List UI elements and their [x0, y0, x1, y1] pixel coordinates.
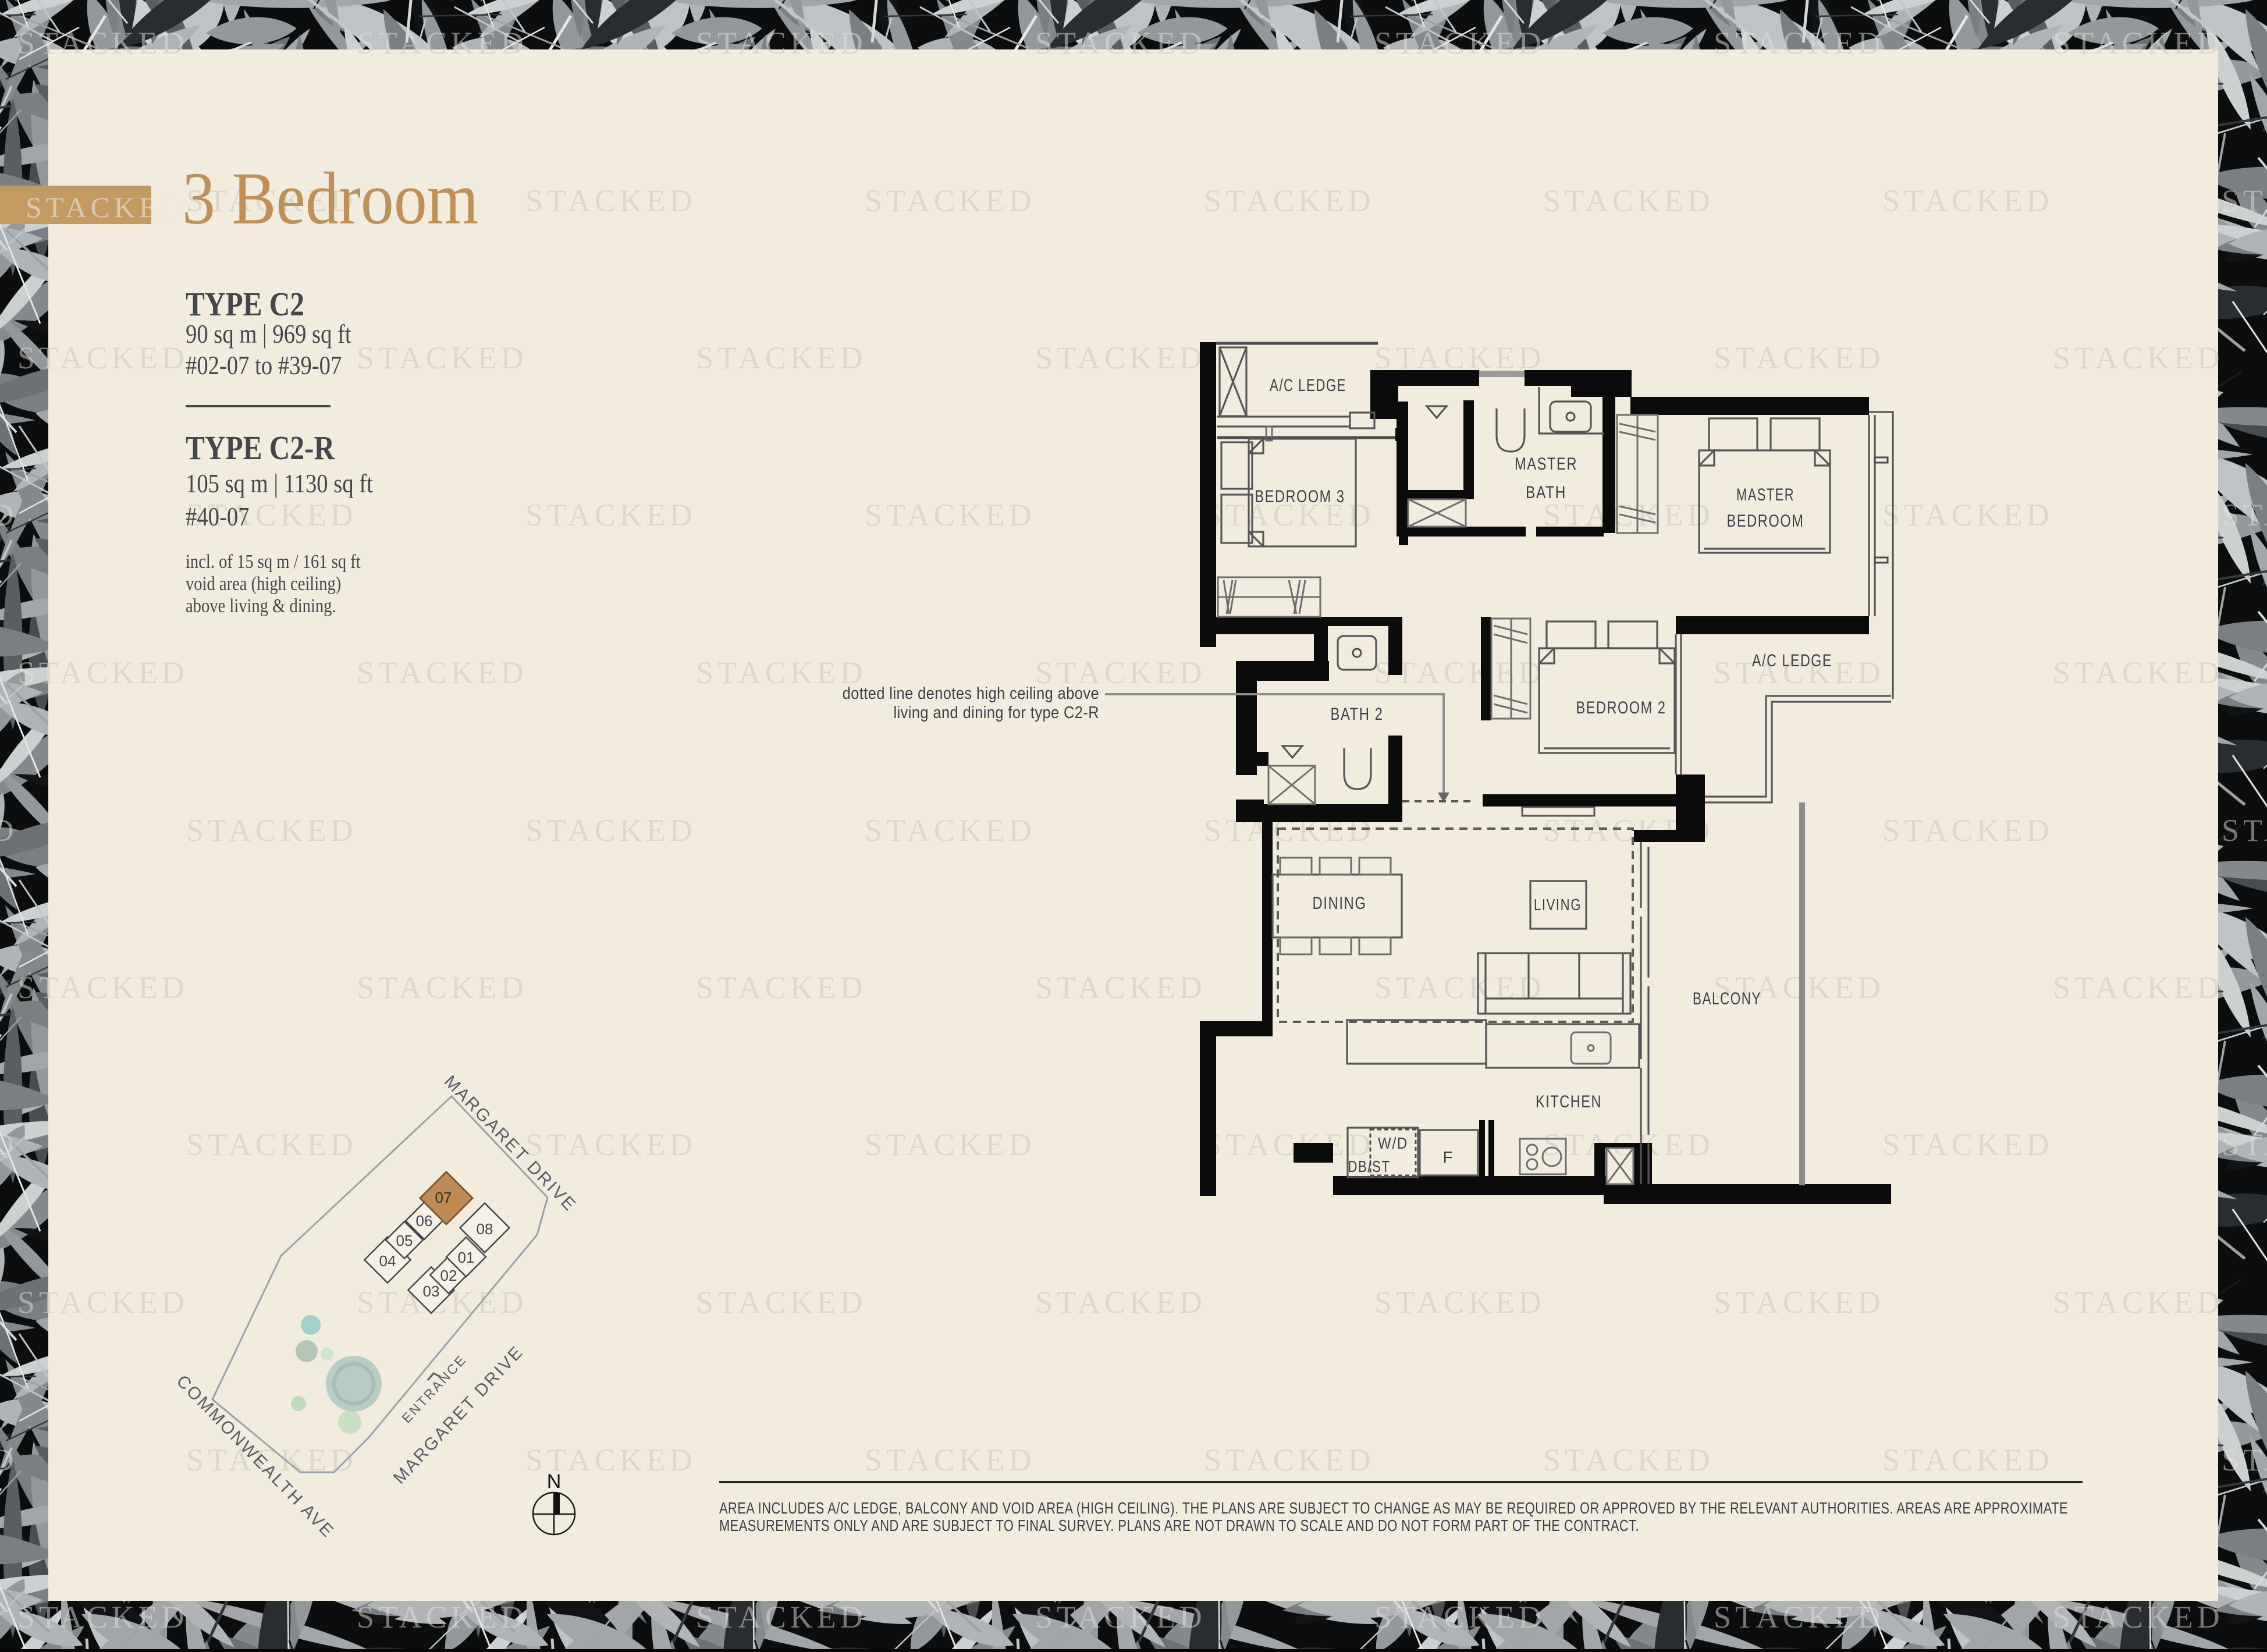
svg-text:COMMONWEALTH AVE: COMMONWEALTH AVE — [173, 1372, 338, 1542]
svg-text:DB/ST: DB/ST — [1348, 1157, 1391, 1175]
svg-text:LIVING: LIVING — [1534, 896, 1582, 914]
svg-text:01: 01 — [458, 1249, 475, 1266]
svg-text:KITCHEN: KITCHEN — [1536, 1092, 1602, 1111]
svg-text:A/C LEDGE: A/C LEDGE — [1270, 376, 1346, 395]
svg-text:BATH 2: BATH 2 — [1331, 705, 1384, 724]
svg-text:03: 03 — [423, 1282, 440, 1300]
svg-text:A/C LEDGE: A/C LEDGE — [1752, 651, 1832, 670]
svg-text:BEDROOM 3: BEDROOM 3 — [1255, 487, 1345, 506]
svg-text:MASTER: MASTER — [1515, 454, 1577, 474]
svg-text:08: 08 — [477, 1220, 493, 1238]
svg-text:BEDROOM 2: BEDROOM 2 — [1576, 698, 1667, 717]
svg-text:07: 07 — [435, 1189, 452, 1206]
svg-text:05: 05 — [396, 1232, 413, 1249]
svg-text:W/D: W/D — [1378, 1134, 1408, 1152]
svg-text:F: F — [1442, 1148, 1454, 1166]
svg-text:04: 04 — [379, 1252, 396, 1270]
svg-text:BATH: BATH — [1526, 483, 1566, 502]
svg-text:BEDROOM: BEDROOM — [1727, 511, 1804, 531]
svg-text:MASTER: MASTER — [1736, 485, 1795, 505]
svg-text:06: 06 — [416, 1212, 433, 1230]
svg-text:N: N — [547, 1470, 562, 1493]
svg-text:02: 02 — [440, 1267, 457, 1284]
svg-text:DINING: DINING — [1313, 894, 1367, 913]
svg-text:BALCONY: BALCONY — [1693, 989, 1761, 1008]
